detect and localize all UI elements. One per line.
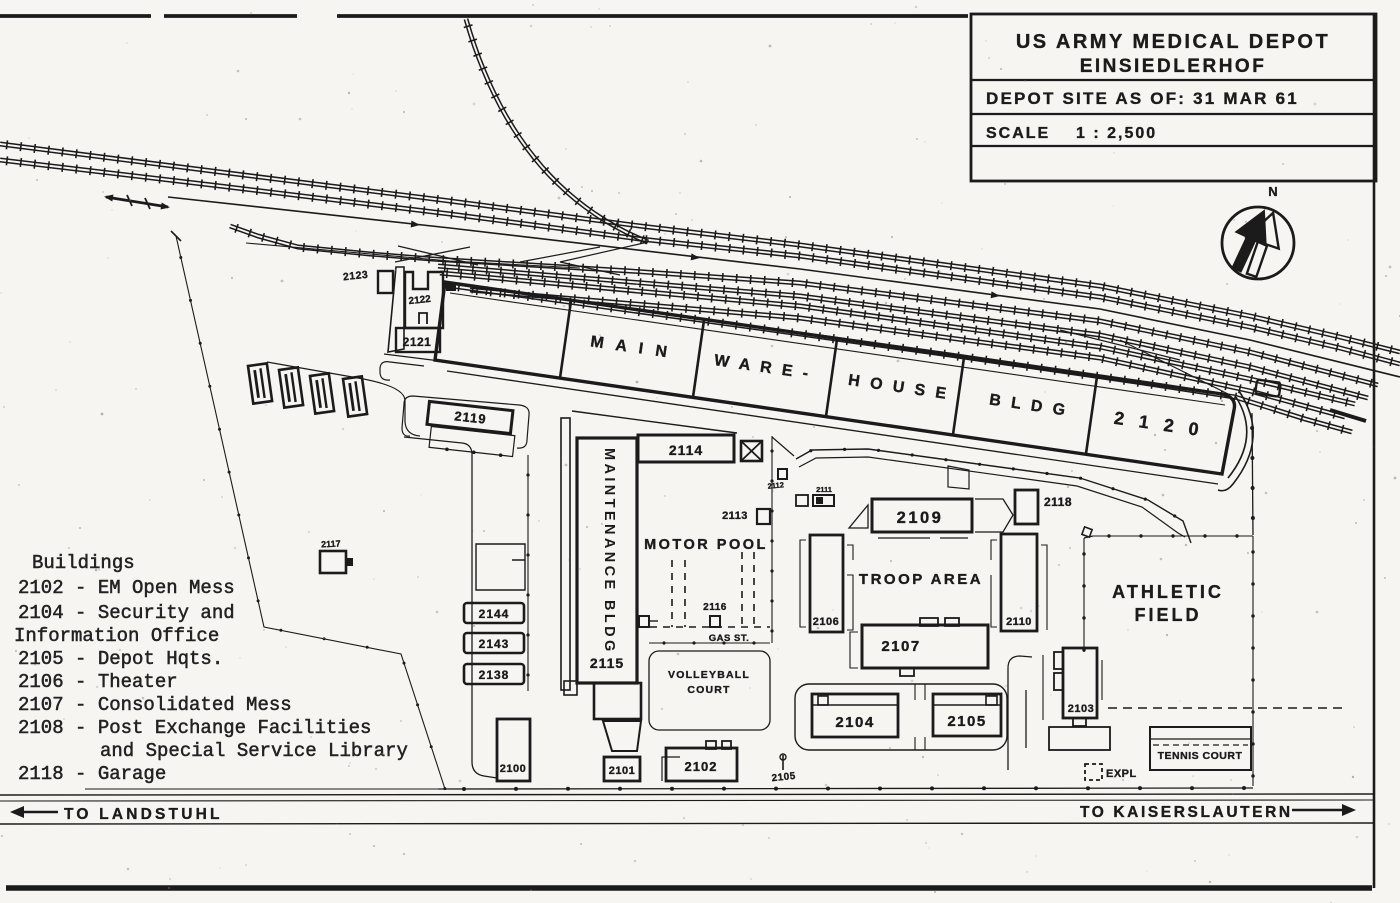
svg-text:2113: 2113 [722, 510, 748, 522]
svg-text:COURT: COURT [687, 684, 730, 696]
svg-text:and Special Service Library: and Special Service Library [100, 740, 408, 762]
svg-text:Buildings: Buildings [32, 552, 135, 574]
svg-text:N: N [1268, 184, 1277, 199]
svg-text:2117: 2117 [321, 538, 341, 549]
svg-text:MOTOR POOL: MOTOR POOL [644, 537, 768, 553]
svg-text:2110: 2110 [1006, 616, 1032, 628]
svg-text:SCALE 1 : 2,500: SCALE 1 : 2,500 [986, 125, 1157, 142]
svg-text:2104 - Security and: 2104 - Security and [18, 602, 235, 624]
svg-text:GAS ST.: GAS ST. [709, 633, 749, 644]
svg-text:US ARMY MEDICAL DEPOT: US ARMY MEDICAL DEPOT [1016, 31, 1330, 53]
svg-text:2107: 2107 [881, 638, 920, 655]
svg-text:TO LANDSTUHL: TO LANDSTUHL [64, 806, 223, 823]
svg-text:2106 - Theater: 2106 - Theater [18, 671, 178, 693]
svg-text:2138: 2138 [479, 668, 510, 682]
svg-text:2108 - Post Exchange Facilitie: 2108 - Post Exchange Facilities [18, 717, 371, 739]
svg-text:2114: 2114 [669, 442, 703, 458]
svg-text:2116: 2116 [703, 602, 727, 613]
svg-text:Information Office: Information Office [14, 625, 219, 647]
svg-text:2102 - EM Open Mess: 2102 - EM Open Mess [18, 577, 235, 599]
svg-text:2112: 2112 [767, 480, 784, 490]
svg-text:2105 - Depot Hqts.: 2105 - Depot Hqts. [18, 648, 223, 670]
svg-text:2115: 2115 [590, 655, 624, 671]
svg-text:2111: 2111 [816, 485, 832, 494]
svg-text:TENNIS COURT: TENNIS COURT [1158, 750, 1243, 762]
svg-text:TO KAISERSLAUTERN: TO KAISERSLAUTERN [1080, 804, 1293, 821]
svg-text:DEPOT SITE AS OF: 31 MAR 61: DEPOT SITE AS OF: 31 MAR 61 [986, 89, 1299, 108]
svg-text:2107 - Consolidated Mess: 2107 - Consolidated Mess [18, 694, 292, 716]
svg-text:2144: 2144 [479, 607, 510, 621]
svg-text:2100: 2100 [500, 763, 526, 775]
svg-text:VOLLEYBALL: VOLLEYBALL [668, 669, 750, 681]
svg-text:EXPL: EXPL [1106, 768, 1137, 780]
svg-text:2106: 2106 [813, 616, 839, 628]
svg-text:2118 - Garage: 2118 - Garage [18, 763, 166, 785]
svg-text:2103: 2103 [1068, 703, 1094, 715]
svg-text:EINSIEDLERHOF: EINSIEDLERHOF [1080, 56, 1267, 77]
svg-text:2101: 2101 [609, 765, 635, 777]
svg-text:MAINTENANCE BLDG: MAINTENANCE BLDG [601, 448, 617, 655]
svg-text:2121: 2121 [403, 335, 432, 349]
svg-text:2109: 2109 [897, 509, 944, 527]
svg-text:2102: 2102 [685, 759, 718, 774]
svg-text:2143: 2143 [479, 637, 510, 651]
svg-text:TROOP AREA: TROOP AREA [859, 571, 983, 588]
svg-text:2104: 2104 [835, 714, 874, 731]
svg-text:2118: 2118 [1044, 495, 1072, 509]
svg-text:ATHLETIC: ATHLETIC [1112, 582, 1224, 602]
svg-text:FIELD: FIELD [1135, 605, 1202, 625]
svg-text:2105: 2105 [947, 713, 986, 730]
